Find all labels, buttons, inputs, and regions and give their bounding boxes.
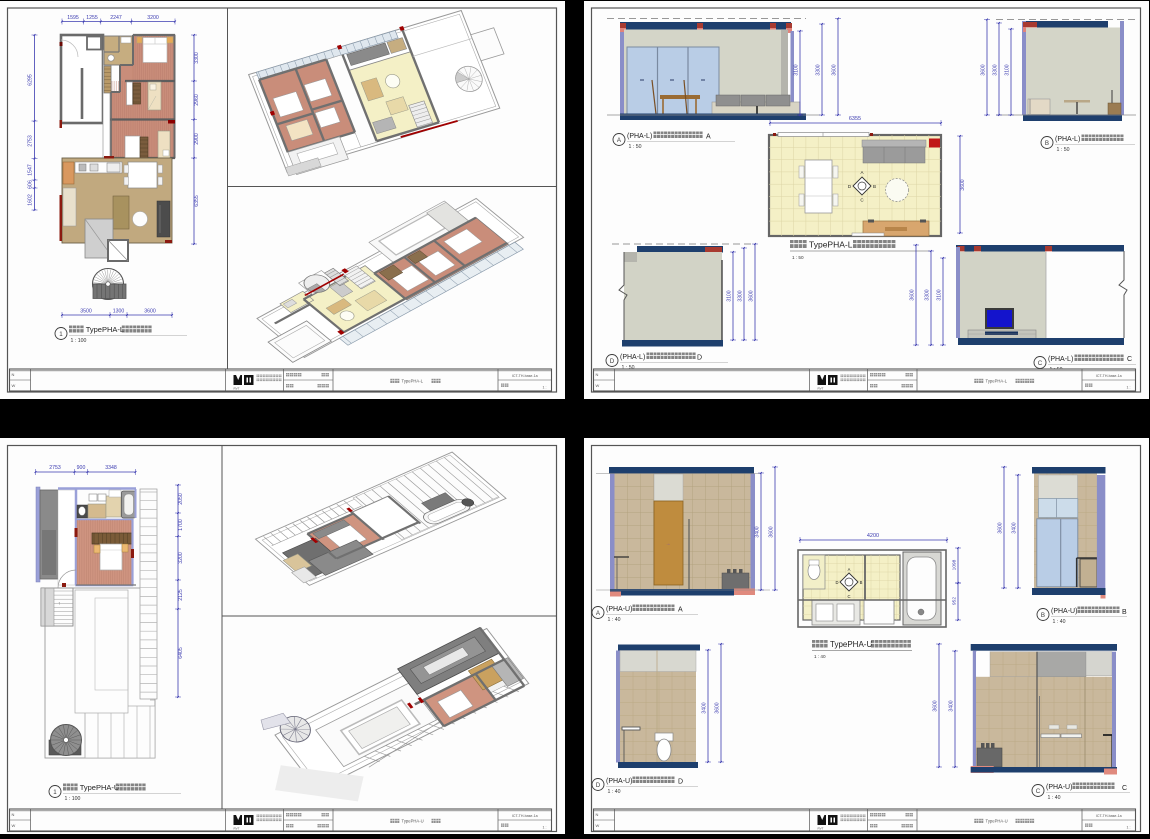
svg-text:TypePHA-U: TypePHA-U <box>402 819 424 824</box>
svg-text:3400: 3400 <box>1012 522 1018 533</box>
svg-text:TypePHA-U: TypePHA-U <box>80 783 120 792</box>
svg-text:W: W <box>12 823 16 828</box>
svg-text:1 : 50: 1 : 50 <box>629 144 642 150</box>
svg-text:ICT-TH-base-1a: ICT-TH-base-1a <box>1096 374 1122 378</box>
svg-text:(PHA-U): (PHA-U) <box>606 606 632 613</box>
svg-text:D: D <box>610 358 615 365</box>
svg-text:W: W <box>12 383 16 388</box>
svg-text:(PHA-L): (PHA-L) <box>1048 356 1073 363</box>
svg-text:6405: 6405 <box>178 647 184 659</box>
svg-text:N: N <box>596 812 599 817</box>
svg-text:N: N <box>12 372 15 377</box>
svg-text:D: D <box>596 782 601 789</box>
svg-text:1 : 40: 1 : 40 <box>608 789 621 795</box>
svg-text:B: B <box>1122 609 1127 616</box>
svg-text:1547: 1547 <box>28 164 34 176</box>
svg-text:2753: 2753 <box>49 465 61 471</box>
svg-text:3600: 3600 <box>960 179 966 190</box>
svg-text:TypePHA-L: TypePHA-L <box>809 240 853 250</box>
svg-text:W: W <box>596 823 600 828</box>
svg-text:606: 606 <box>28 180 34 189</box>
svg-text:1 : 100: 1 : 100 <box>65 796 81 802</box>
svg-text:(PHA-U): (PHA-U) <box>1051 608 1077 615</box>
svg-text:6295: 6295 <box>28 74 34 86</box>
svg-text:3348: 3348 <box>105 465 117 471</box>
svg-text:3300: 3300 <box>816 64 822 75</box>
svg-text:1 :: 1 : <box>543 386 547 390</box>
svg-text:ICT-TH-base-1a: ICT-TH-base-1a <box>512 814 538 818</box>
svg-text:ICT-TH-base-1a: ICT-TH-base-1a <box>512 374 538 378</box>
svg-text:3100: 3100 <box>794 64 800 75</box>
svg-text:RVT: RVT <box>818 827 824 831</box>
svg-text:RVT: RVT <box>234 387 240 391</box>
svg-text:2125: 2125 <box>178 589 184 601</box>
svg-text:RVT: RVT <box>818 387 824 391</box>
svg-text:W: W <box>596 383 600 388</box>
svg-text:3400: 3400 <box>755 526 761 537</box>
svg-text:1 :: 1 : <box>543 826 547 830</box>
svg-text:3600: 3600 <box>910 289 916 300</box>
svg-text:1 :: 1 : <box>1127 386 1131 390</box>
svg-text:1: 1 <box>53 789 57 796</box>
svg-text:C: C <box>1038 360 1043 367</box>
svg-text:1595: 1595 <box>67 15 79 21</box>
svg-text:1 : 50: 1 : 50 <box>792 255 804 260</box>
svg-text:1 : 40: 1 : 40 <box>814 654 826 659</box>
svg-text:1 : 50: 1 : 50 <box>1057 147 1070 153</box>
svg-text:3600: 3600 <box>981 64 987 75</box>
svg-text:1602: 1602 <box>28 194 34 206</box>
svg-text:3300: 3300 <box>925 289 931 300</box>
svg-text:TypePHA-L: TypePHA-L <box>402 379 424 384</box>
svg-text:TypePHA-U: TypePHA-U <box>986 819 1008 824</box>
svg-text:(PHA-L): (PHA-L) <box>620 354 645 361</box>
svg-text:A: A <box>860 170 863 175</box>
svg-text:N: N <box>12 812 15 817</box>
svg-text:3600: 3600 <box>144 309 156 315</box>
svg-text:(PHA-L): (PHA-L) <box>627 133 652 140</box>
svg-text:D: D <box>678 779 683 786</box>
svg-text:1 :: 1 : <box>1127 826 1131 830</box>
svg-text:(PHA-U): (PHA-U) <box>1046 784 1072 791</box>
svg-text:N: N <box>596 372 599 377</box>
svg-text:952: 952 <box>952 597 958 605</box>
svg-text:3200: 3200 <box>178 552 184 564</box>
svg-text:3600: 3600 <box>715 702 721 713</box>
svg-text:1255: 1255 <box>86 15 98 21</box>
svg-text:3200: 3200 <box>147 15 159 21</box>
svg-text:(PHA-U): (PHA-U) <box>606 778 632 785</box>
svg-text:3300: 3300 <box>738 290 744 301</box>
svg-text:A: A <box>848 567 851 572</box>
svg-text:C: C <box>1122 785 1127 792</box>
svg-text:900: 900 <box>77 465 86 471</box>
svg-text:3600: 3600 <box>933 700 939 711</box>
svg-text:C: C <box>1127 356 1132 363</box>
svg-text:4200: 4200 <box>867 533 879 539</box>
svg-text:6355: 6355 <box>849 116 861 122</box>
svg-text:3300: 3300 <box>993 64 999 75</box>
svg-text:RVT: RVT <box>234 827 240 831</box>
svg-text:1 : 100: 1 : 100 <box>71 338 87 344</box>
svg-text:1300: 1300 <box>113 309 125 315</box>
svg-text:A: A <box>706 134 711 141</box>
svg-text:3600: 3600 <box>769 526 775 537</box>
svg-text:1700: 1700 <box>178 519 184 531</box>
svg-text:6355: 6355 <box>194 195 200 207</box>
svg-text:3400: 3400 <box>702 702 708 713</box>
svg-text:B: B <box>860 580 863 585</box>
svg-text:1 : 40: 1 : 40 <box>608 617 621 623</box>
svg-text:1098: 1098 <box>952 559 958 570</box>
svg-text:3100: 3100 <box>1005 64 1011 75</box>
svg-text:↑: ↑ <box>58 601 61 607</box>
svg-text:3400: 3400 <box>949 700 955 711</box>
svg-text:1 : 40: 1 : 40 <box>1048 795 1061 801</box>
svg-text:ICT-TH-base-1a: ICT-TH-base-1a <box>1096 814 1122 818</box>
svg-text:2753: 2753 <box>28 135 34 147</box>
svg-text:TypePHA-L: TypePHA-L <box>986 379 1008 384</box>
svg-text:(PHA-L): (PHA-L) <box>1055 136 1080 143</box>
svg-text:2050: 2050 <box>178 493 184 505</box>
svg-text:1: 1 <box>59 331 63 338</box>
svg-text:B: B <box>1045 140 1049 147</box>
svg-text:3600: 3600 <box>832 64 838 75</box>
svg-text:2247: 2247 <box>110 15 122 21</box>
svg-text:2900: 2900 <box>194 133 200 145</box>
svg-text:3600: 3600 <box>998 522 1004 533</box>
svg-text:1 : 40: 1 : 40 <box>1053 619 1066 625</box>
svg-text:B: B <box>1041 612 1045 619</box>
svg-text:D: D <box>835 580 838 585</box>
svg-text:TypePHA-U: TypePHA-U <box>830 640 872 649</box>
svg-text:D: D <box>697 355 702 362</box>
svg-text:3100: 3100 <box>937 289 943 300</box>
svg-text:3500: 3500 <box>80 309 92 315</box>
svg-text:2960: 2960 <box>194 94 200 106</box>
svg-text:C: C <box>1036 788 1041 795</box>
svg-text:B: B <box>873 184 876 189</box>
svg-text:→: → <box>666 541 671 547</box>
svg-text:3100: 3100 <box>727 290 733 301</box>
svg-text:3600: 3600 <box>749 290 755 301</box>
svg-text:3300: 3300 <box>194 52 200 64</box>
svg-text:A: A <box>678 607 683 614</box>
svg-text:TypePHA-L: TypePHA-L <box>86 325 124 334</box>
svg-text:C: C <box>847 594 850 599</box>
